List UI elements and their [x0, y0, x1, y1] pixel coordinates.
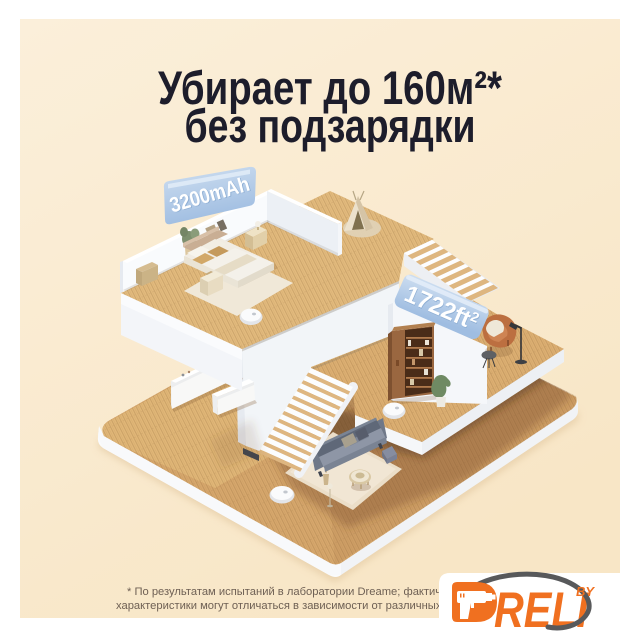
svg-text:BY: BY [576, 584, 595, 599]
svg-text:характеристики могут отличатьс: характеристики могут отличаться в зависи… [116, 600, 495, 612]
svg-text:* По результатам испытаний в л: * По результатам испытаний в лаборатории… [127, 586, 470, 598]
svg-text:без подзарядки: без подзарядки [185, 99, 476, 152]
svg-text:RELI: RELI [494, 582, 589, 638]
